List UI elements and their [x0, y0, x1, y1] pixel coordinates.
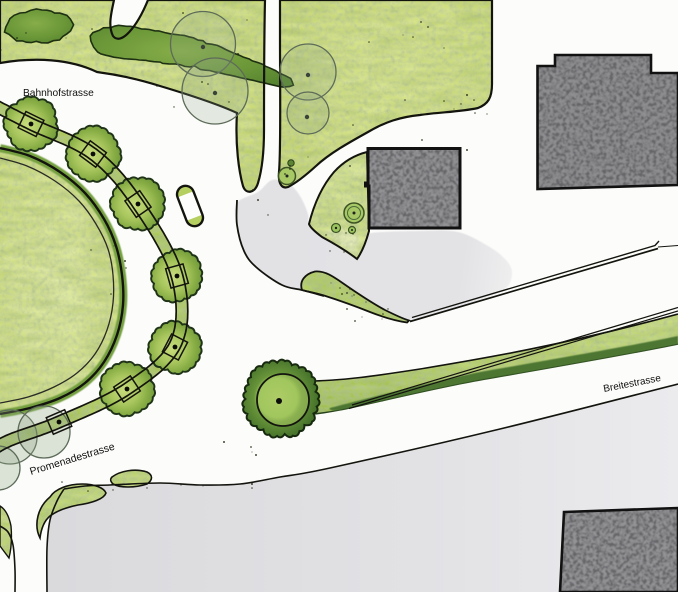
- svg-text:Bahnhofstrasse: Bahnhofstrasse: [23, 88, 94, 99]
